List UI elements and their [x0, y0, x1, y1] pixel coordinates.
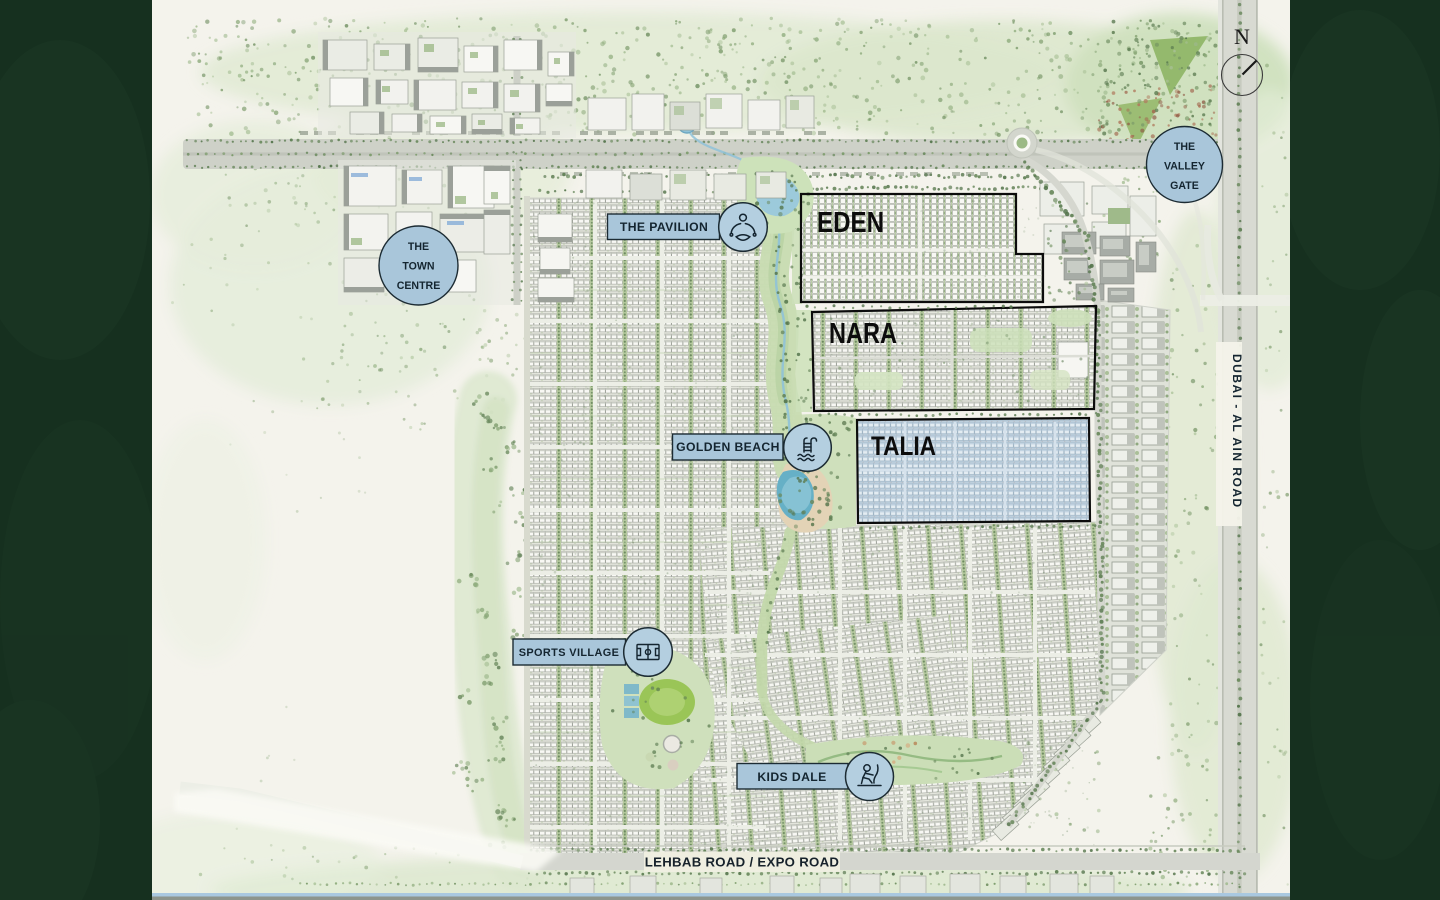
svg-text:THE: THE — [1174, 141, 1195, 153]
svg-text:NARA: NARA — [829, 318, 897, 350]
svg-text:EDEN: EDEN — [817, 207, 884, 239]
svg-text:SPORTS VILLAGE: SPORTS VILLAGE — [519, 647, 620, 659]
svg-text:VALLEY: VALLEY — [1164, 161, 1205, 173]
svg-text:GOLDEN BEACH: GOLDEN BEACH — [676, 440, 780, 454]
svg-text:TOWN: TOWN — [402, 261, 434, 273]
svg-text:KIDS DALE: KIDS DALE — [757, 770, 826, 784]
svg-text:GATE: GATE — [1170, 180, 1199, 192]
svg-text:CENTRE: CENTRE — [397, 280, 441, 292]
svg-text:TALIA: TALIA — [871, 431, 936, 461]
svg-text:LEHBAB ROAD / EXPO ROAD: LEHBAB ROAD / EXPO ROAD — [645, 855, 839, 870]
svg-text:N: N — [1234, 24, 1250, 49]
svg-text:THE: THE — [408, 241, 429, 253]
svg-text:THE PAVILION: THE PAVILION — [620, 220, 708, 234]
svg-text:DUBAI - AL AIN ROAD: DUBAI - AL AIN ROAD — [1230, 354, 1244, 509]
